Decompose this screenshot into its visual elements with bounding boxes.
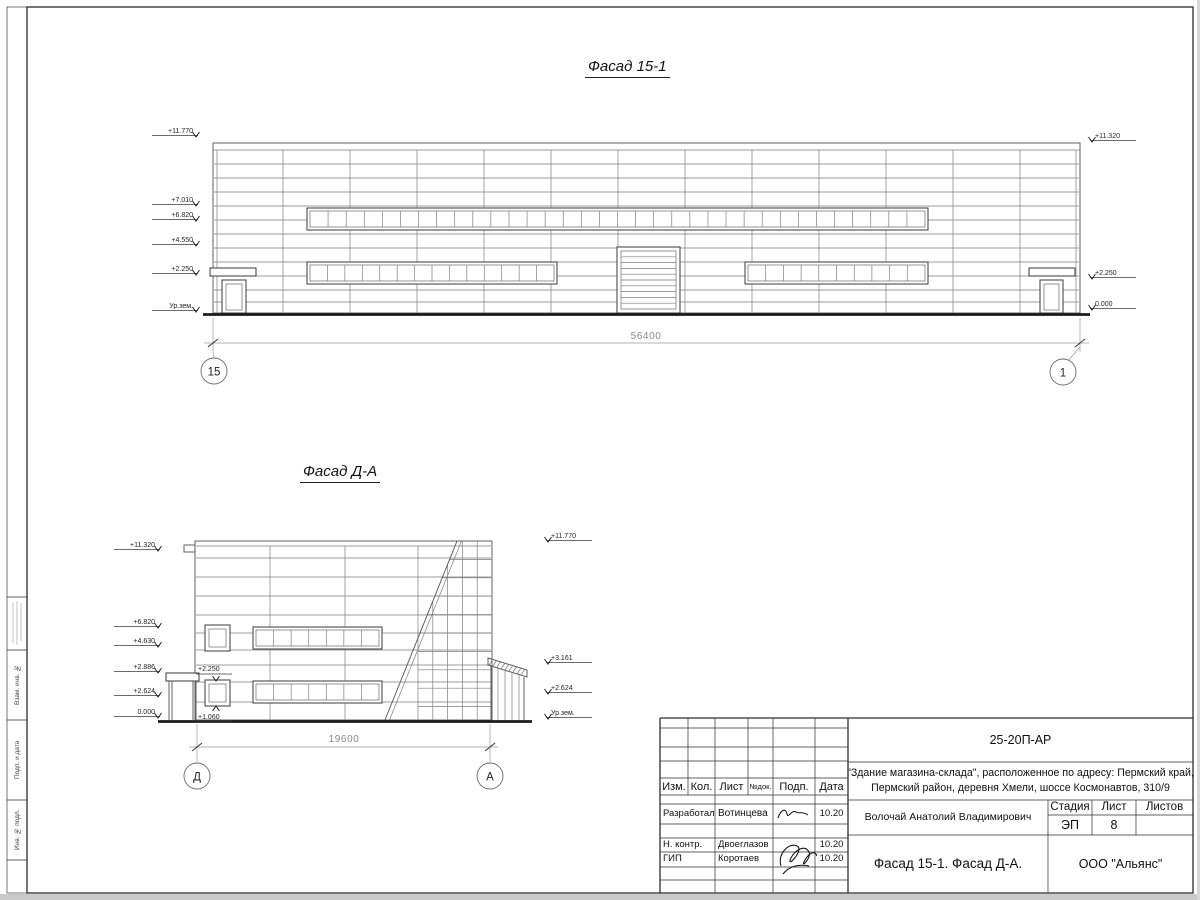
elevation-mark: +2.250 — [1089, 270, 1137, 279]
frame-label-inv: Инв. № подл. — [8, 800, 27, 860]
row-role: ГИП — [660, 852, 718, 867]
object-line-1: "Здание магазина-склада", расположенное … — [847, 766, 1194, 781]
signature — [775, 836, 817, 880]
svg-text:+1.060: +1.060 — [198, 714, 220, 721]
elevation-mark: +7.010 — [152, 197, 200, 206]
object-description: "Здание магазина-склада", расположенное … — [850, 762, 1191, 800]
elevation-mark: +2.624 — [114, 688, 162, 697]
svg-text:0.000: 0.000 — [137, 709, 155, 716]
elevation-mark: +1.060 — [196, 706, 232, 721]
row-role: Н. контр. — [660, 838, 718, 852]
axis-label-right: А — [486, 772, 494, 784]
list-label: Лист — [1092, 800, 1136, 815]
entrance-door-right — [1029, 268, 1075, 313]
svg-text:+2.250: +2.250 — [171, 266, 193, 273]
row-date: 10.20 — [815, 804, 848, 824]
elevation-mark: +2.886 — [114, 664, 162, 673]
elevation-mark: +11.770 — [152, 128, 200, 137]
ribbon-window-lower-left — [307, 262, 557, 284]
row-date: 10.20 — [815, 852, 848, 867]
svg-text:+2.250: +2.250 — [198, 666, 220, 673]
stair-diagonal — [385, 541, 457, 720]
row-date: 10.20 — [815, 838, 848, 852]
elevation-mark: +11.320 — [1089, 133, 1137, 142]
ribbon-window-lower-right — [745, 262, 928, 284]
elevation-mark: +4.550 — [152, 237, 200, 246]
signature — [776, 806, 814, 822]
row-name: Двоеглазов — [715, 838, 776, 852]
drawing-sheet: 56400 15 1 +11.770 +7.010 +6.820 +4.550 … — [0, 0, 1200, 900]
row-role: Разработал — [660, 804, 718, 824]
elevation-mark: +2.624 — [545, 685, 593, 694]
ribbon-window-lower — [253, 681, 382, 703]
elevation-mark: +2.250 — [196, 666, 232, 681]
svg-text:+6.820: +6.820 — [171, 212, 193, 219]
square-window-lower — [205, 680, 230, 706]
elevation-mark: +2.250 — [152, 266, 200, 275]
stair-diagonal-inner — [390, 541, 462, 720]
elevation-mark: +4.630 — [114, 638, 162, 647]
svg-text:+2.250: +2.250 — [1095, 270, 1117, 277]
svg-text:Ур.зем.: Ур.зем. — [551, 710, 575, 717]
axis-label-left: Д — [193, 772, 201, 784]
elevation-mark: 0.000 — [1089, 301, 1137, 310]
curtain-wall-grid — [418, 541, 492, 720]
row-name: Коротаев — [715, 852, 776, 867]
svg-text:+11.320: +11.320 — [1095, 133, 1120, 140]
axis-label-right: 1 — [1060, 368, 1066, 380]
col-data: Дата — [815, 779, 848, 795]
col-list: Лист — [715, 779, 748, 795]
elevation-mark: 0.000 — [114, 709, 162, 718]
company-name: ООО "Альянс" — [1048, 835, 1193, 893]
annex-right — [488, 658, 527, 720]
col-izm: Изм. — [660, 779, 688, 795]
document-code: 25-20П-АР — [848, 718, 1193, 762]
facade-15-1-title: Фасад 15-1 — [585, 58, 670, 78]
elevation-mark: Ур.зем. — [152, 303, 200, 312]
elevation-mark: +3.161 — [545, 655, 593, 664]
page-edge-bottom — [0, 894, 1200, 900]
facade-15-1-drawing: 56400 15 1 +11.770 +7.010 +6.820 +4.550 … — [152, 128, 1136, 385]
elevation-mark: +11.770 — [545, 533, 593, 542]
dimension-value: 56400 — [631, 331, 662, 342]
svg-text:+4.630: +4.630 — [133, 638, 155, 645]
elevation-mark: Ур.зем. — [545, 710, 593, 719]
col-podp: Подп. — [773, 779, 815, 795]
sheet-number: 8 — [1092, 815, 1136, 835]
object-line-2: Пермский район, деревня Хмели, шоссе Кос… — [871, 781, 1170, 796]
svg-text:+6.820: +6.820 — [133, 619, 155, 626]
square-window-upper — [205, 625, 230, 651]
svg-text:+4.550: +4.550 — [171, 237, 193, 244]
dimension-value: 19600 — [329, 734, 360, 745]
axis-label-left: 15 — [208, 367, 221, 379]
facade-d-a-drawing: 19600 Д А +11.320 +6.820 +4.630 +2.886 +… — [114, 533, 592, 789]
col-kol: Кол. — [688, 779, 715, 795]
roof-flag — [184, 545, 195, 552]
dimension-19600: 19600 Д А — [184, 724, 503, 789]
svg-text:+11.770: +11.770 — [551, 533, 576, 540]
svg-text:+11.770: +11.770 — [168, 128, 193, 135]
svg-text:+2.886: +2.886 — [133, 664, 155, 671]
elevation-mark: +6.820 — [114, 619, 162, 628]
sectional-gate — [617, 247, 680, 313]
row-name: Вотинцева — [715, 804, 776, 824]
svg-text:Ур.зем.: Ур.зем. — [169, 303, 193, 310]
svg-text:+11.320: +11.320 — [130, 542, 155, 549]
frame-side-fine-print — [13, 601, 21, 645]
elevation-mark: +6.820 — [152, 212, 200, 221]
col-ndok: №док. — [748, 779, 773, 795]
svg-text:+7.010: +7.010 — [171, 197, 193, 204]
svg-text:+2.624: +2.624 — [133, 688, 155, 695]
svg-text:+3.161: +3.161 — [551, 655, 573, 662]
svg-text:+2.624: +2.624 — [551, 685, 573, 692]
porch-left — [166, 673, 199, 720]
listov-label: Листов — [1136, 800, 1193, 815]
approver-name: Волочай Анатолий Владимирович — [848, 800, 1048, 835]
stage-value: ЭП — [1048, 815, 1092, 835]
ribbon-window-upper — [307, 208, 928, 230]
facade-d-a-title: Фасад Д-А — [300, 463, 380, 483]
svg-text:0.000: 0.000 — [1095, 301, 1113, 308]
dimension-56400: 56400 15 1 — [201, 318, 1089, 385]
stage-label: Стадия — [1048, 800, 1092, 815]
elevation-mark: +11.320 — [114, 542, 162, 551]
ribbon-window-upper — [253, 627, 382, 649]
sheet-title: Фасад 15-1. Фасад Д-А. — [848, 835, 1048, 893]
frame-label-vzam: Взам. инв. № — [8, 650, 27, 720]
frame-label-podp: Подп. и дата — [8, 720, 27, 800]
